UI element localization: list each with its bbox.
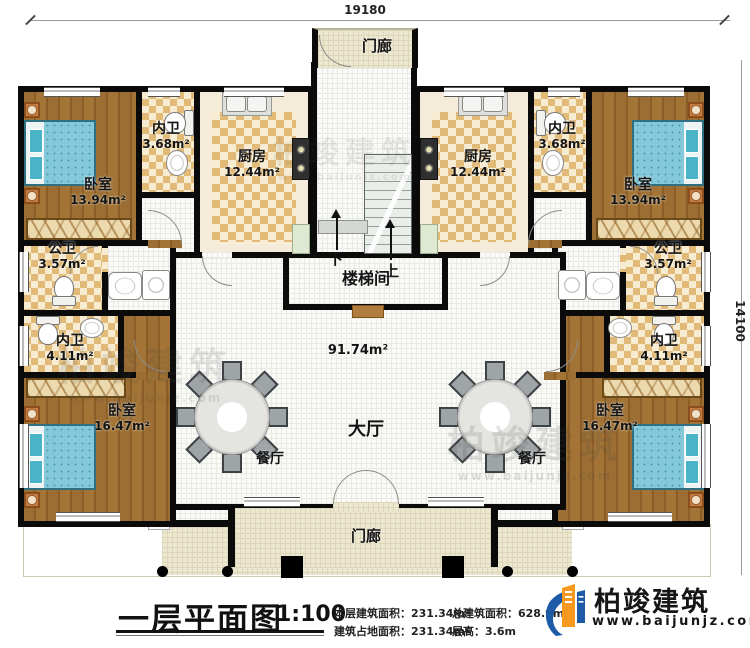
door-opening (620, 248, 626, 272)
window (19, 252, 29, 292)
stat-storey-height: 层高：3.6m (452, 623, 516, 639)
porch-column (222, 566, 233, 577)
porch-column (502, 566, 513, 577)
door-opening (136, 372, 168, 380)
room-label-stairwell: 楼梯间 (342, 270, 390, 288)
room-label-bedroom-tl: 卧室 13.94m² (70, 178, 126, 207)
window (608, 512, 672, 522)
window (19, 326, 29, 366)
room-label-dining-left: 餐厅 (256, 452, 284, 468)
room-label-hall: 大厅 (348, 420, 384, 440)
sink-icon (608, 318, 632, 338)
porch-pier (281, 556, 303, 578)
sink-icon (166, 150, 188, 176)
room-label-bedroom-tr: 卧室 13.94m² (610, 178, 666, 207)
washer-icon (142, 270, 170, 300)
nightstand (688, 492, 704, 508)
title-underline (116, 635, 324, 636)
washer-icon (558, 270, 586, 300)
kitchen-sink-basin (226, 96, 246, 112)
wardrobe (596, 218, 702, 240)
room-label-neiwei-tr: 内卫 3.68m² (538, 122, 585, 151)
stair-down-label: 下 (328, 248, 343, 269)
room-label-neiwei-mr: 内卫 4.11m² (640, 334, 687, 363)
window (56, 512, 120, 522)
nightstand (24, 188, 40, 204)
door-opening (544, 372, 576, 380)
sink-icon (108, 272, 142, 300)
room-label-kitchen-left: 厨房 12.44m² (224, 150, 280, 179)
bed (24, 424, 96, 490)
stair-landing (318, 220, 368, 234)
porch-pier (442, 556, 464, 578)
toilet-icon (52, 296, 76, 306)
dimension-top-line (30, 20, 730, 21)
toilet-icon (654, 296, 678, 306)
nightstand (688, 102, 704, 118)
staircase (364, 154, 412, 254)
stove-icon (420, 138, 438, 180)
floor-plan-page: 19180 14100 下 上 (0, 0, 750, 648)
stair-arrow-down-stem (336, 214, 338, 250)
door-threshold (352, 305, 384, 318)
porch-column (567, 566, 578, 577)
bed (632, 424, 704, 490)
stat-footprint-area: 建筑占地面积：231.34m² (334, 623, 470, 639)
room-label-bedroom-br: 卧室 16.47m² (582, 404, 638, 433)
window (148, 87, 180, 97)
window (428, 497, 484, 507)
stat-floor-area: 本层建筑面积：231.34m² (334, 605, 470, 621)
kitchen-sink-basin (462, 96, 482, 112)
door-opening (102, 248, 108, 272)
stair-arrow-up-stem (390, 224, 392, 260)
room-label-kitchen-right: 厨房 12.44m² (450, 150, 506, 179)
room-label-porch-top: 门廊 (362, 38, 392, 55)
brand-logo-icon (542, 582, 588, 638)
brand-url[interactable]: www.baijunjz.com (592, 614, 750, 629)
window (701, 326, 711, 366)
kitchen-sink-basin (483, 96, 503, 112)
porch-column (157, 566, 168, 577)
window (628, 87, 684, 97)
window (444, 87, 504, 97)
room-label-neiwei-ml: 内卫 4.11m² (46, 334, 93, 363)
window (244, 497, 300, 507)
kitchen-counter (292, 224, 310, 254)
room-label-dining-right: 餐厅 (518, 452, 546, 468)
nightstand (688, 188, 704, 204)
kitchen-sink-basin (247, 96, 267, 112)
nightstand (688, 406, 704, 422)
window (548, 87, 580, 97)
stove-icon (292, 138, 310, 180)
room-label-porch-bottom: 门廊 (351, 528, 381, 545)
window (19, 424, 29, 488)
title-underline (116, 630, 324, 633)
dimension-top: 19180 (335, 3, 395, 17)
window (224, 87, 284, 97)
dimension-right: 14100 (733, 293, 747, 349)
sink-icon (542, 150, 564, 176)
stair-arrow-down-head (331, 204, 341, 218)
room-label-bedroom-bl: 卧室 16.47m² (94, 404, 150, 433)
kitchen-counter (420, 224, 438, 254)
wardrobe (26, 378, 126, 398)
sink-icon (586, 272, 620, 300)
window (701, 424, 711, 488)
room-label-neiwei-tl: 内卫 3.68m² (142, 122, 189, 151)
wardrobe (26, 218, 132, 240)
stair-arrow-up-head (385, 214, 395, 228)
window (44, 87, 100, 97)
room-label-gongwei-right: 公卫 3.57m² (644, 242, 691, 271)
hall-area-label: 91.74m² (328, 344, 388, 359)
nightstand (24, 492, 40, 508)
nightstand (24, 102, 40, 118)
nightstand (24, 406, 40, 422)
window (701, 252, 711, 292)
brand-logo: 柏竣建筑 www.baijunjz.com (542, 580, 742, 642)
room-label-gongwei-left: 公卫 3.57m² (38, 242, 85, 271)
wardrobe (602, 378, 702, 398)
